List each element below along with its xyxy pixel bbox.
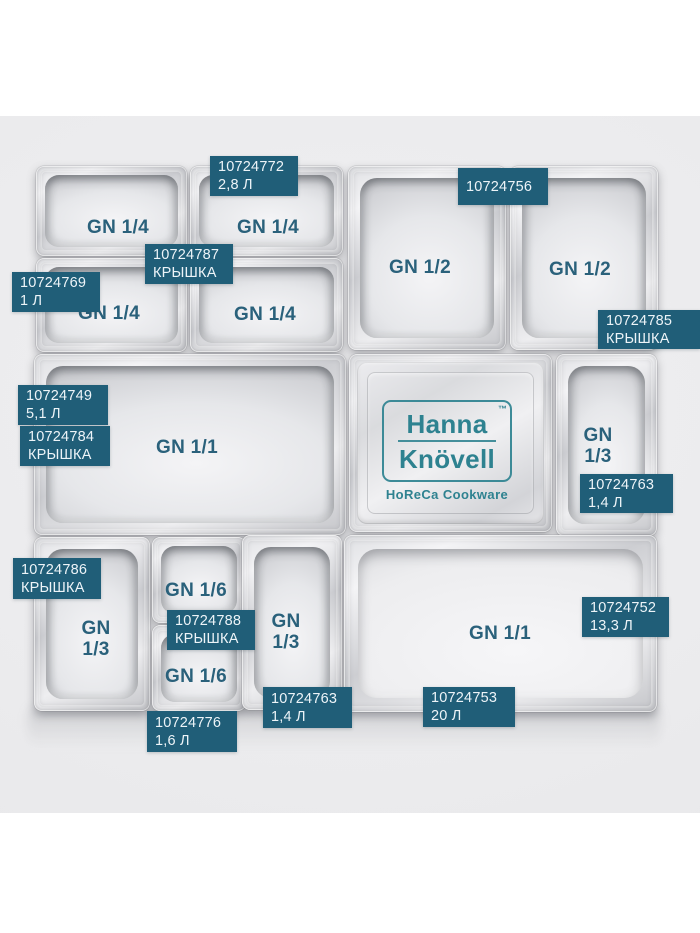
article-number: 10724756	[466, 178, 543, 196]
article-tag: 10724787 КРЫШКА	[145, 244, 233, 284]
article-tag: 10724776 1,6 Л	[147, 711, 237, 752]
article-number: 10724776	[155, 714, 232, 732]
gn-size-line: 1/3	[271, 632, 300, 653]
gn-size-label: GN 1/1	[156, 437, 218, 459]
gn-size-label: GN 1/3	[271, 611, 300, 653]
article-subtitle: 5,1 Л	[26, 405, 103, 423]
article-number: 10724763	[588, 476, 668, 494]
article-tag: 10724763 1,4 Л	[263, 687, 352, 728]
article-number: 10724784	[28, 428, 105, 446]
gn-size-label: GN 1/1	[469, 623, 531, 645]
brand-name-line2: Knövell	[399, 445, 495, 473]
article-subtitle: 1,4 Л	[588, 494, 668, 512]
logo-divider	[398, 440, 496, 442]
gn-size-label: GN 1/2	[549, 259, 611, 281]
article-tag: 10724756	[458, 168, 548, 205]
brand-logo: ™ Hanna Knövell HoReCa Cookware	[376, 400, 518, 502]
article-tag: 10724753 20 Л	[423, 687, 515, 727]
article-subtitle: 1 Л	[20, 292, 95, 310]
article-number: 10724752	[590, 599, 664, 617]
article-subtitle: КРЫШКА	[21, 579, 96, 597]
brand-tagline: HoReCa Cookware	[386, 487, 508, 502]
gn-size-line: GN	[583, 425, 612, 446]
article-subtitle: 2,8 Л	[218, 176, 293, 194]
article-tag: 10724786 КРЫШКА	[13, 558, 101, 599]
article-subtitle: КРЫШКА	[606, 330, 695, 348]
gn-size-label: GN 1/3	[81, 618, 110, 660]
article-number: 10724749	[26, 387, 103, 405]
article-subtitle: 20 Л	[431, 707, 510, 725]
article-tag: 10724788 КРЫШКА	[167, 610, 255, 650]
article-number: 10724786	[21, 561, 96, 579]
article-subtitle: 1,4 Л	[271, 708, 347, 726]
article-tag: 10724772 2,8 Л	[210, 156, 298, 196]
gn-size-label: GN 1/6	[165, 666, 227, 688]
gn-size-line: GN	[271, 611, 300, 632]
article-subtitle: КРЫШКА	[153, 264, 228, 282]
article-number: 10724788	[175, 612, 250, 630]
gn-size-label: GN 1/4	[87, 217, 149, 239]
gn-size-line: 1/3	[583, 446, 612, 467]
article-tag: 10724752 13,3 Л	[582, 597, 669, 637]
article-number: 10724769	[20, 274, 95, 292]
gn-size-label: GN 1/6	[165, 580, 227, 602]
article-subtitle: 1,6 Л	[155, 732, 232, 750]
gn-size-label: GN 1/4	[237, 217, 299, 239]
article-subtitle: КРЫШКА	[28, 446, 105, 464]
brand-logo-box: ™ Hanna Knövell	[382, 400, 512, 482]
gn-size-label: GN 1/4	[234, 304, 296, 326]
gn-size-label: GN 1/3	[583, 425, 612, 467]
article-tag: 10724784 КРЫШКА	[20, 426, 110, 466]
article-number: 10724772	[218, 158, 293, 176]
trademark-symbol: ™	[498, 404, 507, 414]
article-subtitle: 13,3 Л	[590, 617, 664, 635]
article-subtitle: КРЫШКА	[175, 630, 250, 648]
article-number: 10724787	[153, 246, 228, 264]
pan-gn14-a	[36, 166, 187, 256]
gn-size-line: 1/3	[81, 639, 110, 660]
article-tag: 10724785 КРЫШКА	[598, 310, 700, 349]
gn-size-line: GN	[81, 618, 110, 639]
article-tag: 10724749 5,1 Л	[18, 385, 108, 425]
article-number: 10724785	[606, 312, 695, 330]
product-image: GN 1/4 GN 1/4 GN 1/4 GN 1/4 GN 1/2 GN 1/…	[0, 0, 700, 933]
article-tag: 10724763 1,4 Л	[580, 474, 673, 513]
article-tag: 10724769 1 Л	[12, 272, 100, 312]
brand-name-line1: Hanna	[407, 410, 488, 438]
gn-size-label: GN 1/2	[389, 257, 451, 279]
article-number: 10724753	[431, 689, 510, 707]
article-number: 10724763	[271, 690, 347, 708]
